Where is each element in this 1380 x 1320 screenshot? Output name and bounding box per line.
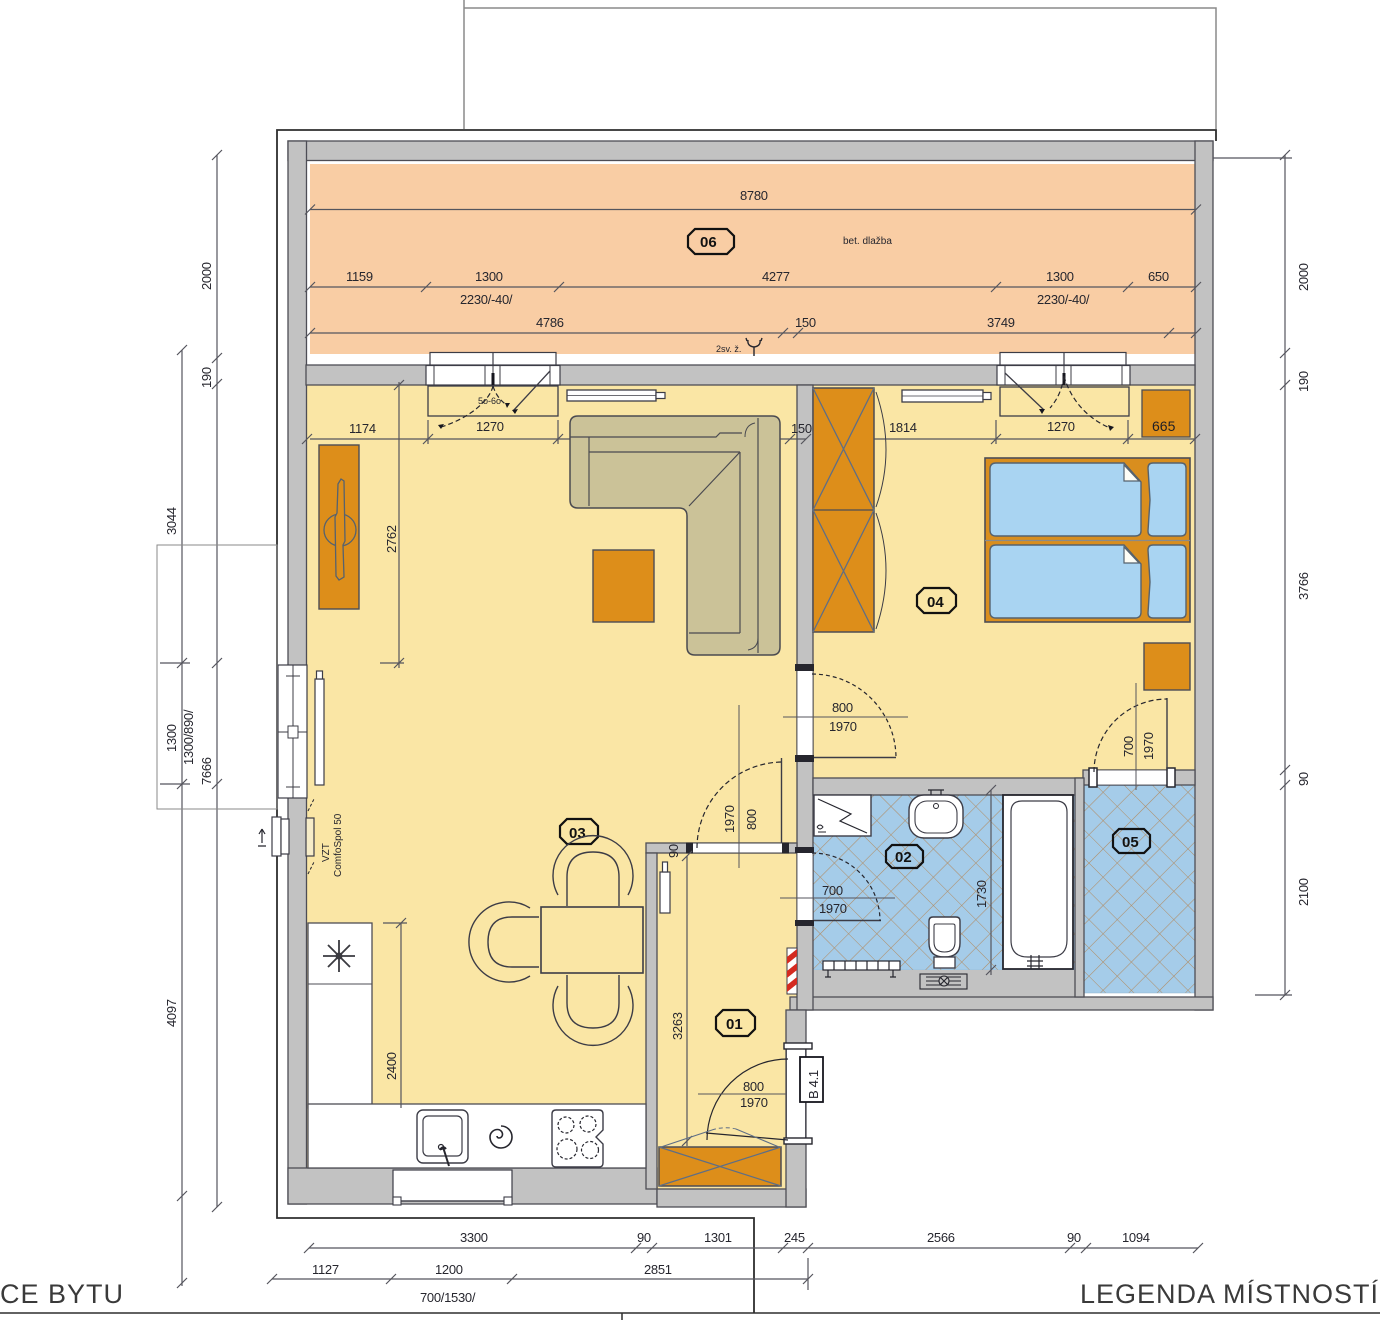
svg-text:3044: 3044: [164, 507, 179, 535]
svg-text:1970: 1970: [819, 901, 847, 916]
svg-text:1970: 1970: [740, 1095, 768, 1110]
svg-text:2851: 2851: [644, 1262, 672, 1277]
svg-text:650: 650: [1148, 269, 1169, 284]
svg-text:1730: 1730: [974, 880, 989, 908]
svg-text:2762: 2762: [384, 525, 399, 553]
svg-text:90: 90: [1067, 1230, 1081, 1245]
svg-text:2400: 2400: [384, 1052, 399, 1080]
svg-text:3263: 3263: [670, 1012, 685, 1040]
svg-text:1300: 1300: [1046, 269, 1074, 284]
svg-text:02: 02: [895, 849, 912, 866]
svg-text:800: 800: [832, 700, 853, 715]
svg-text:150: 150: [791, 421, 812, 436]
svg-text:1300: 1300: [164, 724, 179, 752]
svg-text:1970: 1970: [1141, 732, 1156, 760]
svg-text:2100: 2100: [1296, 878, 1311, 906]
svg-text:1270: 1270: [476, 419, 504, 434]
svg-text:7666: 7666: [199, 757, 214, 785]
svg-text:1159: 1159: [346, 269, 373, 284]
svg-text:ComfoSpol 50: ComfoSpol 50: [333, 813, 344, 877]
svg-text:3749: 3749: [987, 315, 1015, 330]
svg-text:665: 665: [1152, 418, 1176, 434]
svg-text:190: 190: [199, 367, 214, 388]
svg-text:800: 800: [743, 1079, 764, 1094]
svg-text:1200: 1200: [435, 1262, 463, 1277]
svg-text:700: 700: [822, 883, 843, 898]
svg-text:1300/890/: 1300/890/: [181, 709, 196, 765]
svg-text:01: 01: [726, 1016, 743, 1033]
svg-text:700/1530/: 700/1530/: [420, 1290, 476, 1305]
svg-text:90: 90: [637, 1230, 651, 1245]
svg-text:4786: 4786: [536, 315, 564, 330]
svg-text:CE BYTU: CE BYTU: [0, 1279, 124, 1309]
svg-text:1970: 1970: [722, 805, 737, 833]
svg-text:B 4.1: B 4.1: [806, 1070, 821, 1099]
svg-text:06: 06: [700, 234, 717, 251]
svg-text:1970: 1970: [829, 719, 857, 734]
svg-text:1127: 1127: [312, 1262, 339, 1277]
svg-text:2000: 2000: [1296, 263, 1311, 291]
svg-text:2566: 2566: [927, 1230, 955, 1245]
svg-text:1814: 1814: [889, 420, 917, 435]
svg-text:4097: 4097: [164, 999, 179, 1027]
svg-text:150: 150: [795, 315, 816, 330]
svg-text:5o-6o: 5o-6o: [478, 396, 501, 406]
svg-text:190: 190: [1296, 371, 1311, 392]
svg-text:VZT: VZT: [321, 843, 332, 862]
svg-text:8780: 8780: [740, 188, 768, 203]
svg-text:bet. dlažba: bet. dlažba: [843, 236, 892, 247]
svg-text:05: 05: [1122, 834, 1139, 851]
svg-text:1301: 1301: [704, 1230, 732, 1245]
svg-text:90: 90: [1296, 772, 1311, 786]
svg-text:1094: 1094: [1122, 1230, 1150, 1245]
svg-text:2230/-40/: 2230/-40/: [1037, 292, 1090, 307]
svg-text:245: 245: [784, 1230, 805, 1245]
svg-text:90: 90: [666, 844, 681, 858]
svg-text:1174: 1174: [349, 421, 376, 436]
svg-text:04: 04: [927, 594, 944, 611]
svg-text:3300: 3300: [460, 1230, 488, 1245]
svg-text:700: 700: [1121, 736, 1136, 757]
svg-text:2000: 2000: [199, 262, 214, 290]
svg-text:800: 800: [744, 809, 759, 830]
svg-text:LEGENDA MÍSTNOSTÍ: LEGENDA MÍSTNOSTÍ: [1080, 1279, 1379, 1309]
svg-text:1300: 1300: [475, 269, 503, 284]
svg-text:4277: 4277: [762, 269, 790, 284]
svg-text:2sv. ž.: 2sv. ž.: [716, 344, 741, 354]
svg-text:1270: 1270: [1047, 419, 1075, 434]
svg-text:3766: 3766: [1296, 572, 1311, 600]
svg-text:2230/-40/: 2230/-40/: [460, 292, 513, 307]
